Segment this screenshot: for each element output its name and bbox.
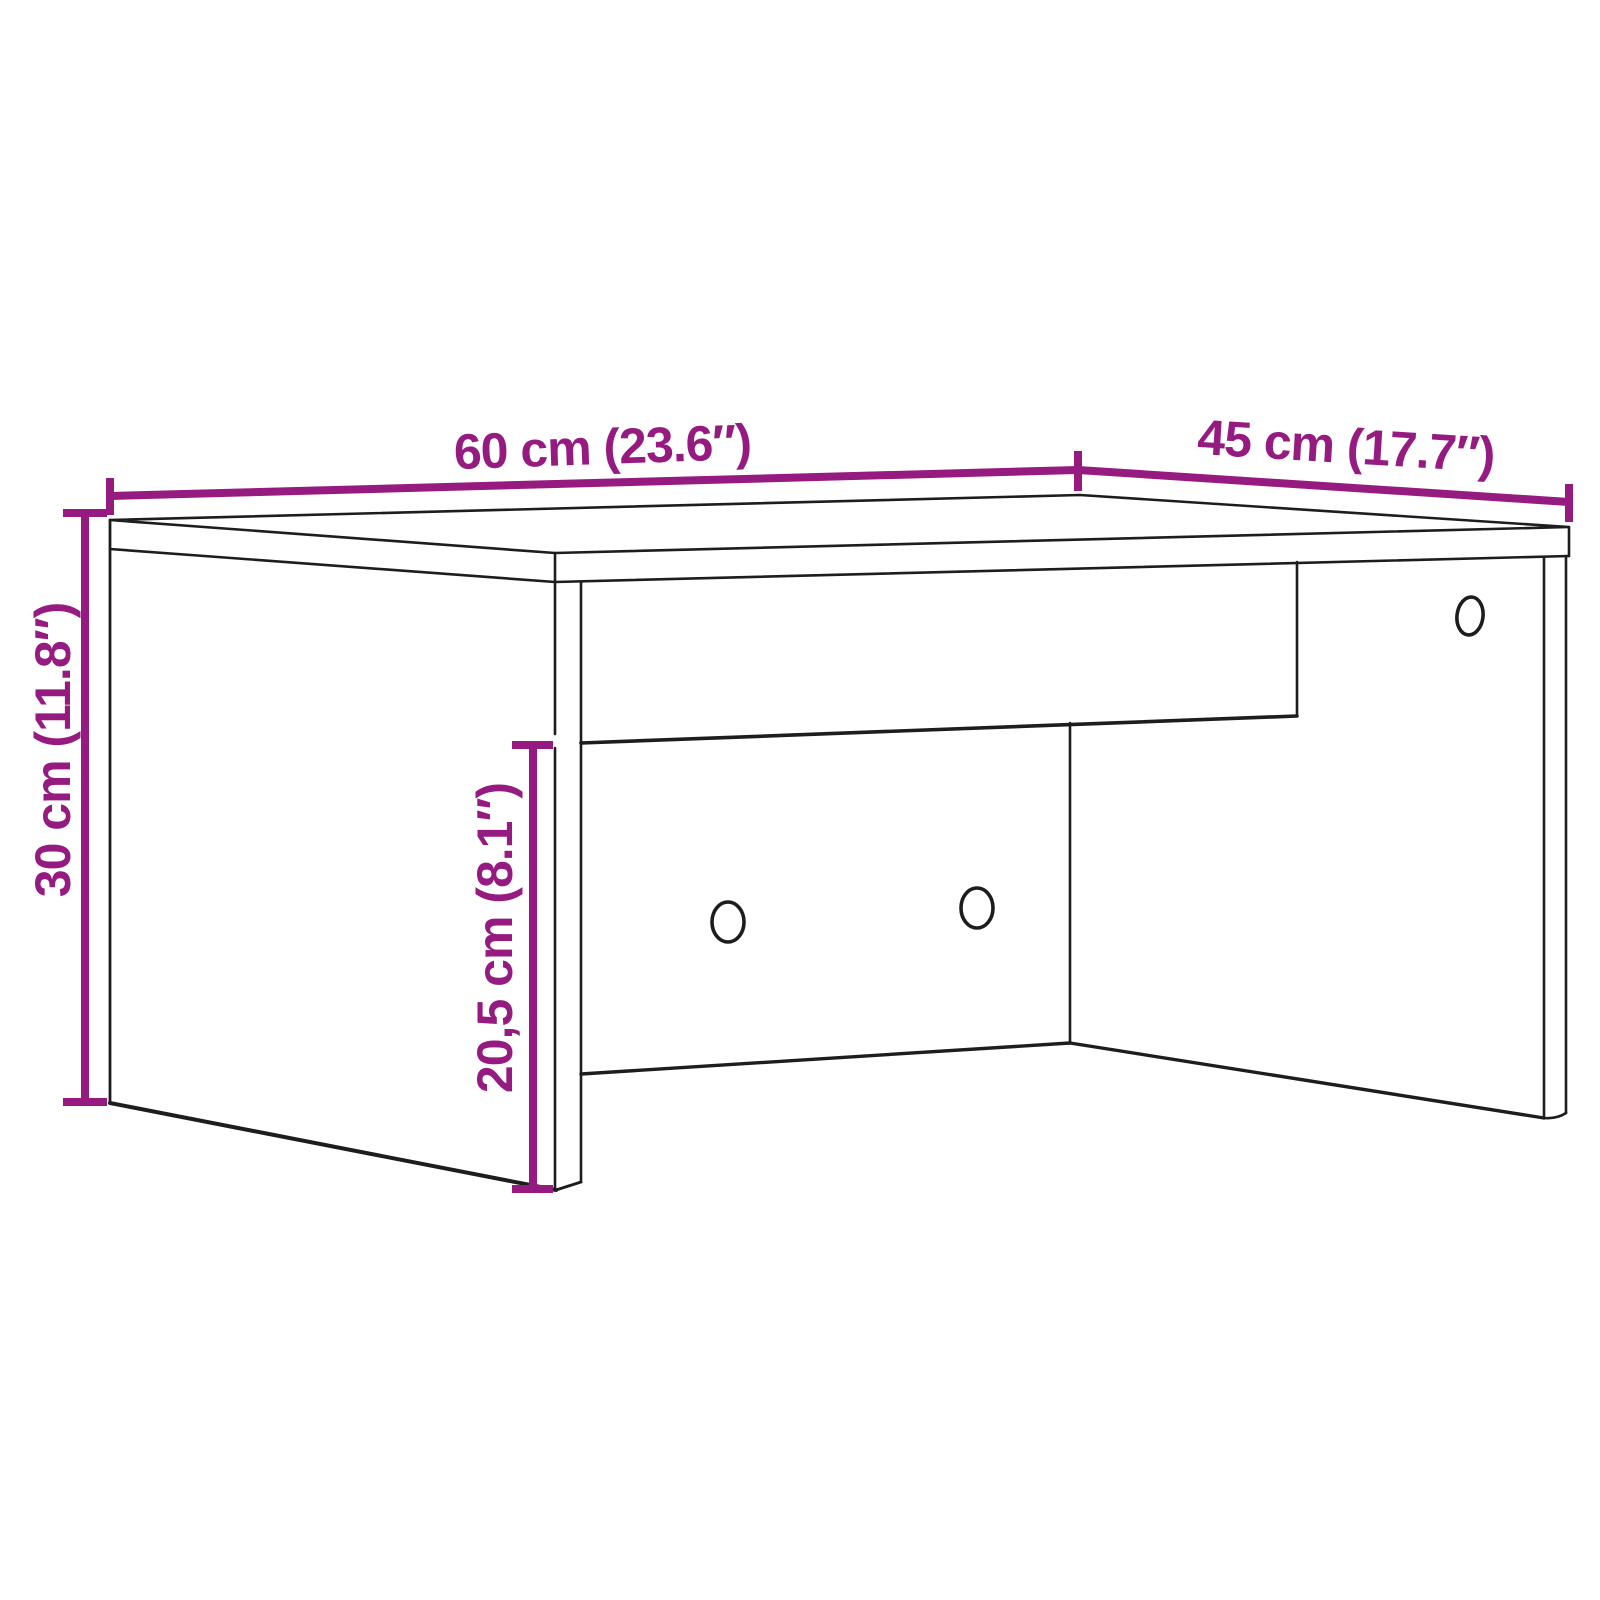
right-panel-inner-bottom-edge	[1070, 1043, 1544, 1118]
top-panel-bottom-edge	[110, 549, 1569, 582]
product-dimension-diagram: 60 cm (23.6″) 45 cm (17.7″) 30 cm (11.8″…	[0, 0, 1600, 1600]
furniture-drawing	[110, 495, 1569, 1190]
dimension-depth-label: 45 cm (17.7″)	[1196, 409, 1496, 483]
back-panel-hole-left	[712, 902, 744, 942]
dimension-labels: 60 cm (23.6″) 45 cm (17.7″) 30 cm (11.8″…	[25, 409, 1496, 1093]
dimension-height-label: 30 cm (11.8″)	[25, 603, 81, 897]
back-panel-hole-right	[961, 888, 993, 928]
left-panel-bottom-edge	[110, 1103, 556, 1190]
dimension-width-label: 60 cm (23.6″)	[453, 414, 752, 480]
top-panel-face	[110, 495, 1569, 553]
right-panel-front-bottom-join	[1544, 1113, 1566, 1118]
dimension-depth-line	[1078, 470, 1569, 502]
dimension-inner-height-label: 20,5 cm (8.1″)	[467, 783, 523, 1093]
diagram-canvas: 60 cm (23.6″) 45 cm (17.7″) 30 cm (11.8″…	[0, 0, 1600, 1600]
drawer-front-bottom-edge	[581, 716, 1297, 743]
back-panel-bottom-edge	[581, 1043, 1070, 1074]
left-panel-front-bottom-join	[556, 1182, 581, 1190]
right-panel-hole	[1455, 596, 1485, 637]
